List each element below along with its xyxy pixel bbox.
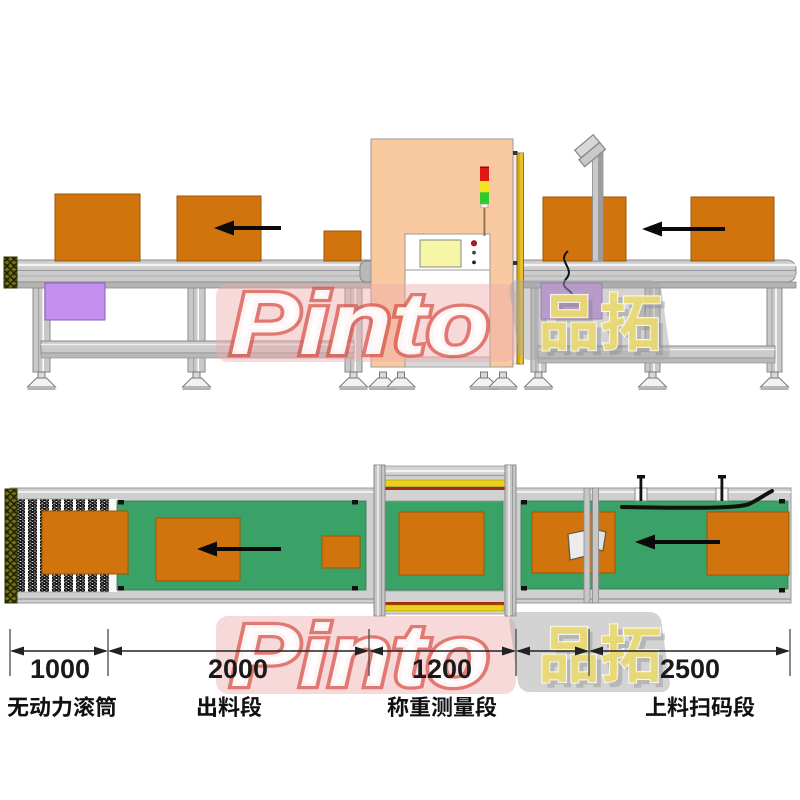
svg-text:1000: 1000 xyxy=(30,654,90,684)
svg-text:2500: 2500 xyxy=(660,654,720,684)
svg-text:1200: 1200 xyxy=(412,654,472,684)
svg-text:2000: 2000 xyxy=(208,654,268,684)
